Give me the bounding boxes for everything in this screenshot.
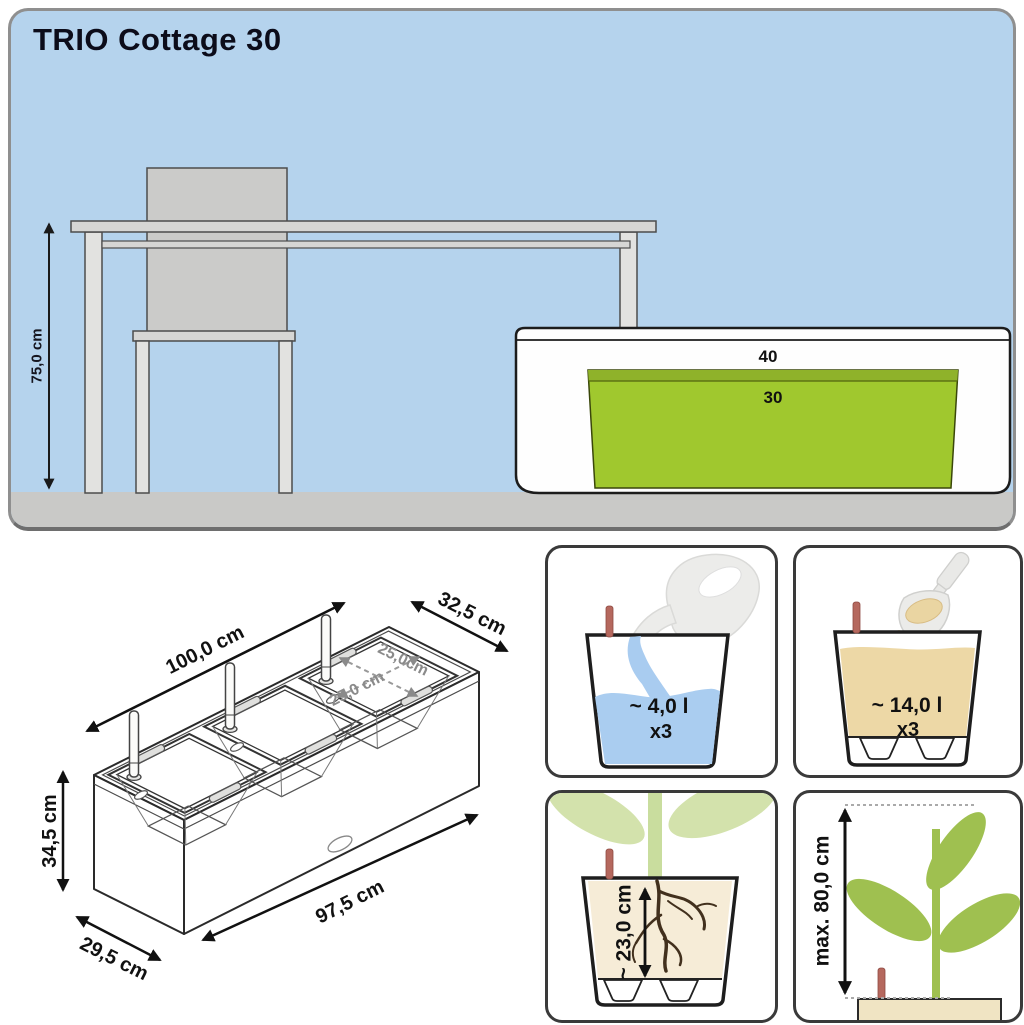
planter-side-view: 40 30 [516, 328, 1010, 493]
iso-base-length-label: 97,5 cm [312, 876, 387, 929]
substrate-capacity-panel: ~ 14,0 l x3 [793, 545, 1023, 778]
chair [133, 331, 295, 493]
pale-plant [548, 793, 775, 881]
substrate-capacity-drawing: ~ 14,0 l x3 [796, 548, 1020, 775]
water-capacity-panel: ~ 4,0 l x3 [545, 545, 778, 778]
water-capacity-drawing: ~ 4,0 l x3 [548, 548, 775, 775]
table-height-dimension: 75,0 cm [29, 224, 50, 488]
root-depth-panel: ~ 23,0 cm [545, 790, 778, 1023]
room-scene-drawing: 75,0 cm 40 30 [11, 11, 1013, 528]
water-volume-label: ~ 4,0 l [630, 695, 689, 718]
water-indicator-stick [878, 968, 885, 1000]
floor [11, 492, 1013, 528]
table-height-label: 75,0 cm [29, 328, 46, 383]
plant-height-drawing: max. 80,0 cm [796, 793, 1020, 1020]
substrate-volume-label: ~ 14,0 l [872, 694, 943, 717]
watering-can-icon [632, 554, 759, 647]
iso-base-depth-label: 29,5 cm [76, 933, 151, 985]
page-title: TRIO Cottage 30 [33, 22, 282, 58]
chair-backrest [147, 168, 287, 336]
water-indicator-stick [606, 849, 613, 879]
substrate-multiplier-label: x3 [897, 719, 919, 741]
root-depth-drawing: ~ 23,0 cm [548, 793, 775, 1020]
planter-outer-size-label: 40 [759, 347, 778, 366]
plant-height-panel: max. 80,0 cm [793, 790, 1023, 1023]
water-indicator-stick [606, 606, 613, 637]
root-depth-label: ~ 23,0 cm [613, 884, 636, 979]
water-indicator-stick [853, 602, 860, 633]
planter-inner-size-label: 30 [764, 388, 783, 407]
iso-height-label: 34,5 cm [39, 794, 61, 867]
water-multiplier-label: x3 [650, 721, 672, 743]
plant [838, 804, 1020, 1001]
pot-rim [858, 999, 1001, 1020]
plant-height-label: max. 80,0 cm [811, 836, 834, 967]
room-scene: 75,0 cm 40 30 TRIO Cottage 30 [8, 8, 1016, 531]
isometric-dimension-drawing: 100,0 cm 32,5 cm 34,5 cm 97,5 cm 29,5 cm… [35, 555, 535, 1020]
